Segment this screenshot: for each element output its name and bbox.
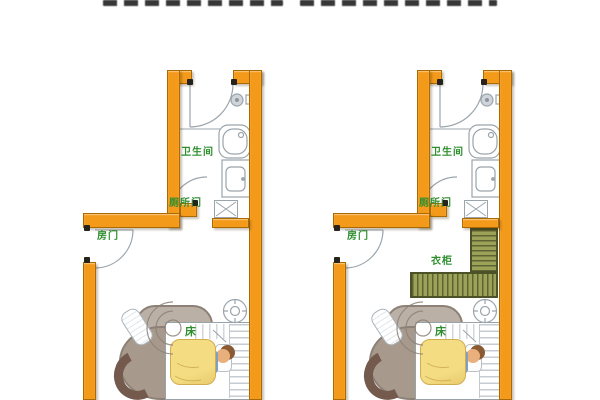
door-jamb [84, 257, 90, 263]
door-arc [190, 84, 233, 127]
vent-x [216, 202, 236, 216]
door-arc [440, 84, 483, 127]
shower-head-dot [235, 98, 239, 102]
bed-fold-line [463, 330, 476, 342]
cropped-title-band [300, 0, 497, 6]
bathroom-label: 卫生间 [431, 147, 464, 159]
bathtub-icon [219, 125, 250, 158]
sink-tap [242, 178, 245, 181]
room-door-label: 房门 [347, 231, 369, 243]
door-jamb [437, 79, 443, 85]
door-jamb [334, 225, 340, 231]
sofa-swirl [147, 302, 181, 354]
door-jamb [231, 79, 237, 85]
bathtub-icon [469, 125, 500, 158]
ceiling-lamp-center [231, 307, 240, 316]
toilet-door-label: 厕所门 [169, 198, 202, 210]
sofa-swirl [397, 302, 431, 354]
floor-plan-image: 卫生间 厕所门 房门 床 衣柜 [0, 0, 600, 400]
wall-segment [83, 213, 180, 228]
wall-segment [249, 70, 262, 400]
wall-segment [333, 213, 430, 228]
shower-head-dot [485, 98, 489, 102]
duvet-folds [175, 363, 201, 381]
door-jamb [187, 79, 193, 85]
ceiling-lamp-ticks [474, 300, 496, 322]
door-jamb [481, 79, 487, 85]
bed-label: 床 [435, 326, 447, 338]
floor-plan-left: 卫生间 厕所门 房门 床 [83, 68, 263, 400]
bed-fold-line [213, 330, 226, 342]
vent-x [466, 202, 486, 216]
sink-tap [492, 178, 495, 181]
room-door-label: 房门 [97, 231, 119, 243]
wall-segment [499, 70, 512, 400]
wall-segment [83, 262, 96, 400]
bathroom-label: 卫生间 [181, 147, 214, 159]
floor-plan-right: 衣柜 [333, 68, 513, 400]
wall-segment [333, 262, 346, 400]
cropped-title-band [103, 0, 283, 6]
bed-label: 床 [185, 326, 197, 338]
door-jamb [334, 257, 340, 263]
wall-segment [462, 218, 499, 228]
wall-segment [212, 218, 249, 228]
toilet-door-label: 厕所门 [419, 198, 452, 210]
ceiling-lamp-ticks [224, 300, 246, 322]
wardrobe-label: 衣柜 [431, 256, 453, 268]
door-jamb [84, 225, 90, 231]
duvet-folds [425, 363, 451, 381]
ceiling-lamp-center [481, 307, 490, 316]
